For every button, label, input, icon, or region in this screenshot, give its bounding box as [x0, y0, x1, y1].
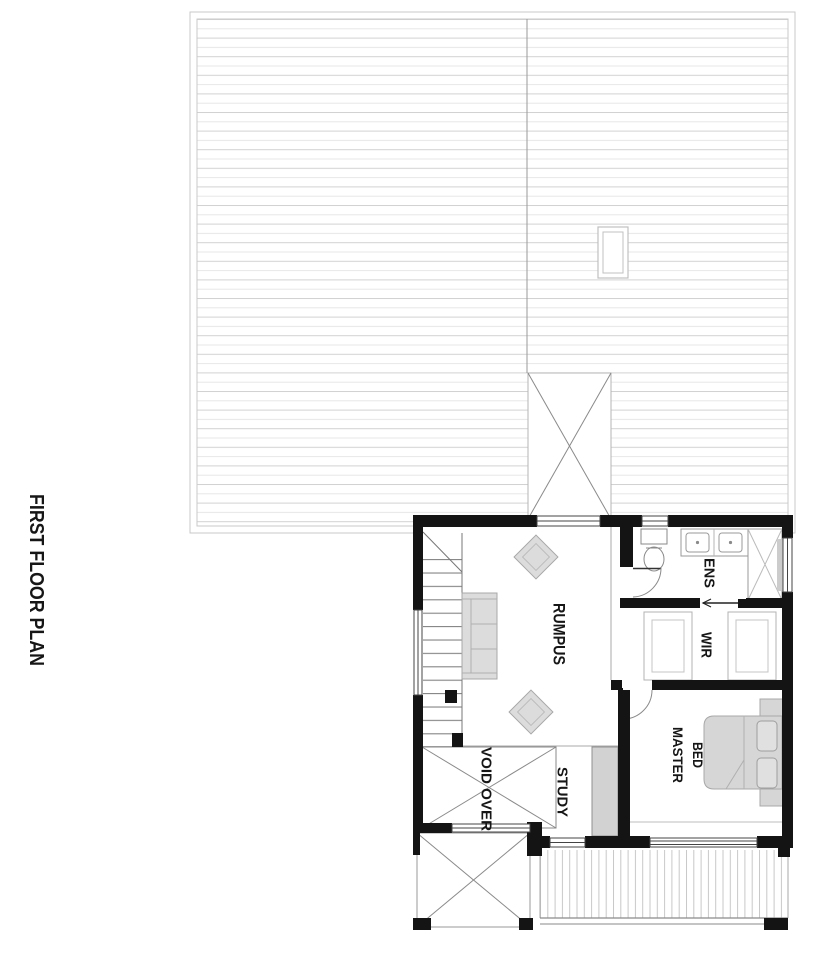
pillow [757, 721, 777, 751]
roof-void-cross [528, 373, 611, 519]
floor-plan-drawing: FIRST FLOOR PLAN RUMPUS ENS WIR MASTER B… [0, 0, 828, 971]
roof-plane [190, 12, 795, 533]
label-study: STUDY [554, 767, 571, 817]
entry-void-cross [417, 833, 530, 927]
page-title: FIRST FLOOR PLAN [25, 494, 47, 666]
wardrobe [728, 612, 776, 680]
desk [592, 747, 618, 836]
window-shower-right [783, 538, 792, 592]
deck [540, 850, 788, 924]
label-rumpus: RUMPUS [550, 603, 569, 665]
pillow [757, 758, 777, 788]
bedside-table [760, 699, 784, 716]
staircase [423, 532, 462, 746]
floor-plan-sheet: FIRST FLOOR PLAN RUMPUS ENS WIR MASTER B… [0, 0, 828, 971]
wardrobe [644, 612, 692, 680]
window-study-bottom [550, 838, 585, 847]
bedside-table [760, 789, 784, 806]
window-master-bottom [650, 838, 757, 847]
shower [748, 529, 783, 600]
skylight [598, 227, 628, 278]
label-ens: ENS [701, 558, 718, 588]
deck-boards [540, 850, 788, 918]
shower-screen [777, 539, 783, 591]
double-bed [704, 716, 782, 789]
label-master-bed-line1: MASTER [670, 727, 686, 783]
vanity-double-basin [681, 529, 748, 556]
roof-sheeting-hatch [197, 19, 788, 526]
window-rumpus-left [414, 610, 422, 695]
window-ens-top [642, 516, 668, 526]
stair-treads [423, 559, 462, 746]
window-rumpus-top [537, 516, 600, 526]
label-void-over: VOID OVER [478, 747, 495, 831]
sofa [462, 593, 497, 679]
label-master-bed-line2: BED [690, 742, 706, 768]
label-wir: WIR [698, 632, 715, 658]
